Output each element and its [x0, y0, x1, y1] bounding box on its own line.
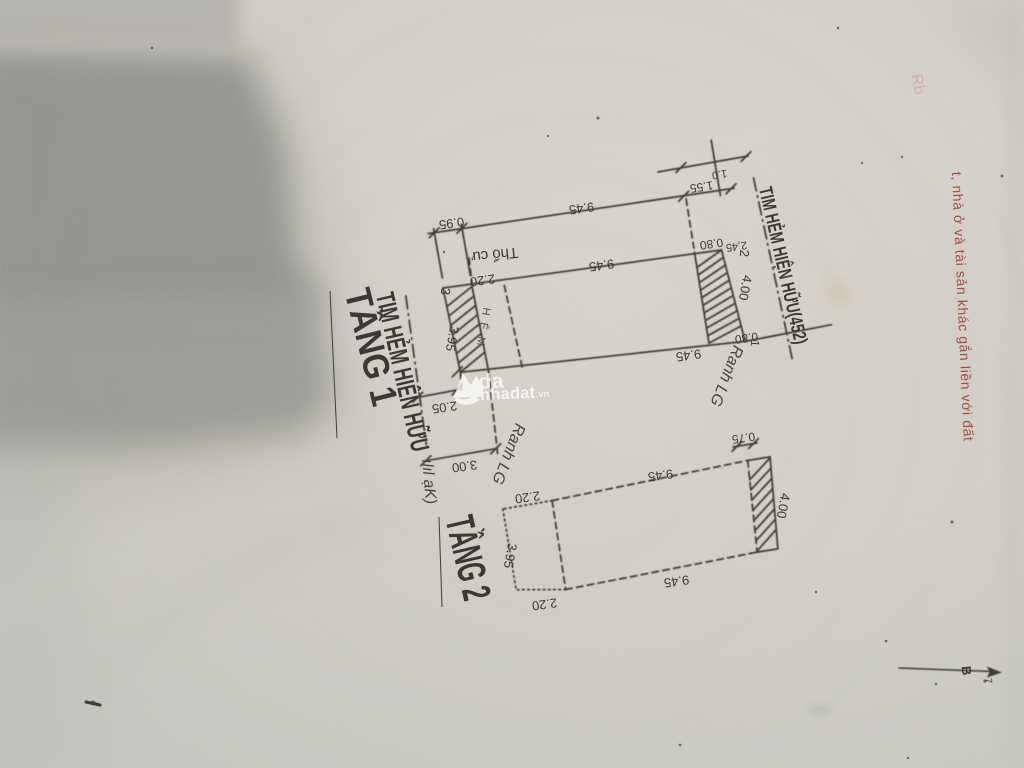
svg-text:1.0: 1.0 — [711, 167, 728, 181]
svg-text:2: 2 — [737, 249, 753, 258]
svg-text:B: B — [959, 665, 975, 676]
svg-text:3: 3 — [438, 287, 454, 296]
svg-text:Rb: Rb — [907, 73, 927, 96]
svg-text:7: 7 — [984, 678, 994, 684]
